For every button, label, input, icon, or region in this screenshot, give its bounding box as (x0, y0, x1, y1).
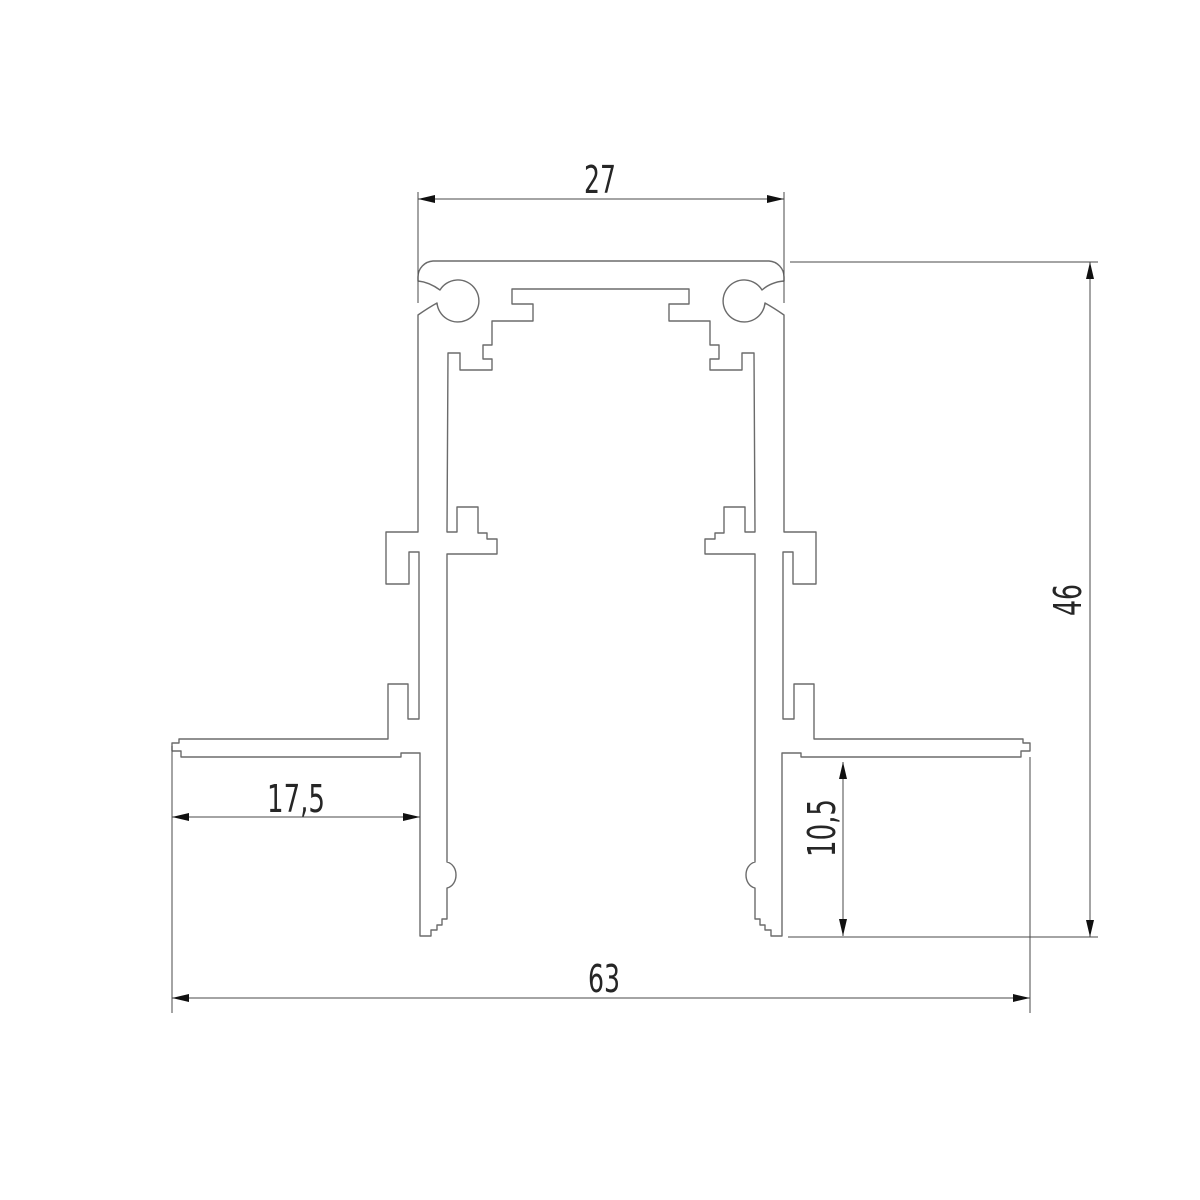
arrowhead-up-icon (839, 762, 847, 779)
arrowhead-left-icon (172, 813, 189, 821)
arrowhead-right-icon (767, 195, 784, 203)
profile-drawing: 27 46 17,5 10,5 (0, 0, 1200, 1200)
arrowhead-left-icon (172, 994, 189, 1002)
dimensions-group: 27 46 17,5 10,5 (172, 158, 1098, 1013)
arrowhead-up-icon (1086, 262, 1094, 279)
arrowhead-right-icon (403, 813, 420, 821)
arrowhead-down-icon (1086, 920, 1094, 937)
profile-outline-group (172, 261, 1030, 936)
arrowhead-down-icon (839, 919, 847, 936)
dim-label-flange-width: 17,5 (267, 777, 325, 821)
dimension-flange-width: 17,5 (172, 777, 420, 821)
dim-label-recess-depth: 10,5 (800, 799, 844, 857)
dimension-top-width: 27 (418, 158, 784, 303)
dim-label-top-width: 27 (584, 158, 616, 202)
profile-outline-path (172, 261, 1030, 936)
arrowhead-right-icon (1013, 994, 1030, 1002)
dim-label-overall-height: 46 (1046, 584, 1090, 616)
technical-drawing-canvas: 27 46 17,5 10,5 (0, 0, 1200, 1200)
dim-label-overall-width: 63 (588, 957, 620, 1001)
arrowhead-left-icon (418, 195, 435, 203)
dimension-recess-depth: 10,5 (800, 762, 847, 936)
